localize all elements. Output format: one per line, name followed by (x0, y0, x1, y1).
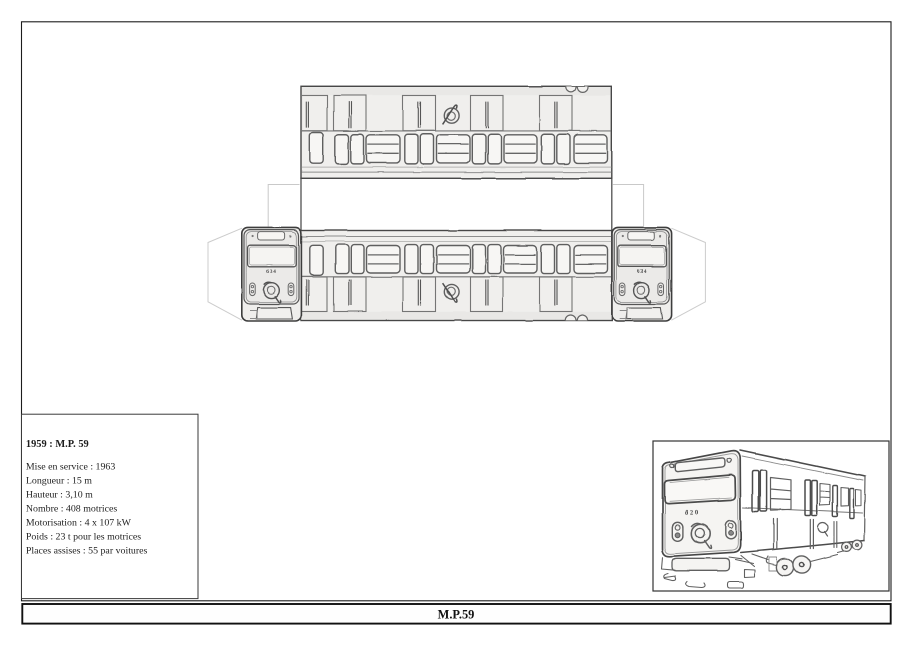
svg-text:Hauteur : 3,10 m: Hauteur : 3,10 m (26, 490, 93, 501)
svg-text:Mise en service : 1963: Mise en service : 1963 (26, 461, 115, 472)
svg-text:Nombre : 408 motrices: Nombre : 408 motrices (26, 504, 117, 515)
svg-text:Motorisation : 4 x 107 kW: Motorisation : 4 x 107 kW (26, 518, 132, 529)
svg-text:Poids : 23 t pour les motrices: Poids : 23 t pour les motrices (26, 532, 141, 543)
svg-text:1959 : M.P. 59: 1959 : M.P. 59 (26, 439, 89, 450)
svg-text:Places assises : 55 par voitur: Places assises : 55 par voitures (26, 546, 148, 557)
svg-text:020: 020 (685, 509, 700, 517)
svg-text:M.P.59: M.P.59 (438, 608, 475, 622)
svg-text:Longueur : 15 m: Longueur : 15 m (26, 475, 92, 486)
